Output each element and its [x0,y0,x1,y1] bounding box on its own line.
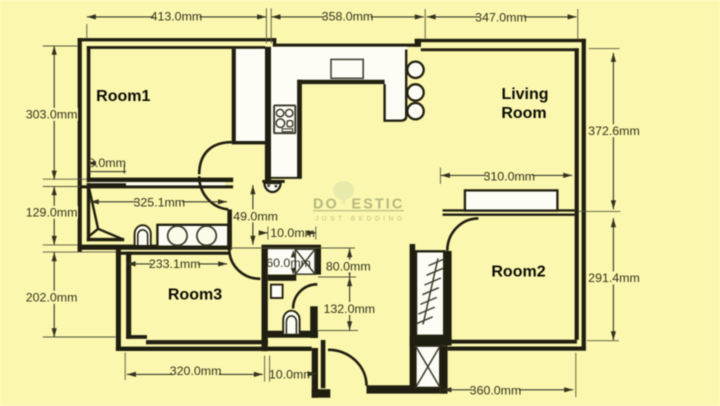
svg-text:303.0mm: 303.0mm [26,108,78,122]
svg-text:413.0mm: 413.0mm [151,10,203,24]
svg-text:291.4mm: 291.4mm [588,271,640,285]
svg-text:347.0mm: 347.0mm [475,10,527,24]
svg-text:233.1mm: 233.1mm [149,257,201,271]
svg-text:10.0mm: 10.0mm [270,226,315,240]
svg-text:60.0mm: 60.0mm [266,256,311,270]
svg-text:Room: Room [501,105,546,122]
svg-text:358.0mm: 358.0mm [322,10,374,24]
svg-text:372.6mm: 372.6mm [588,124,640,138]
svg-text:325.1mm: 325.1mm [133,195,185,209]
svg-text:10.0mm: 10.0mm [269,367,314,381]
svg-text:360.0mm: 360.0mm [470,383,522,397]
svg-text:Room2: Room2 [491,263,545,280]
svg-text:Living: Living [501,86,548,103]
svg-text:310.0mm: 310.0mm [483,169,535,183]
svg-text:132.0mm: 132.0mm [323,302,375,316]
svg-text:202.0mm: 202.0mm [26,291,78,305]
svg-text:Room3: Room3 [168,287,222,304]
svg-text:80.0mm: 80.0mm [326,260,371,274]
svg-text:49.0mm: 49.0mm [233,209,278,223]
svg-text:129.0mm: 129.0mm [26,206,78,220]
svg-text:320.0mm: 320.0mm [170,364,222,378]
svg-text:JUST BEDDING: JUST BEDDING [315,216,406,223]
svg-text:8.0mm: 8.0mm [88,156,126,170]
svg-text:Room1: Room1 [96,88,150,105]
